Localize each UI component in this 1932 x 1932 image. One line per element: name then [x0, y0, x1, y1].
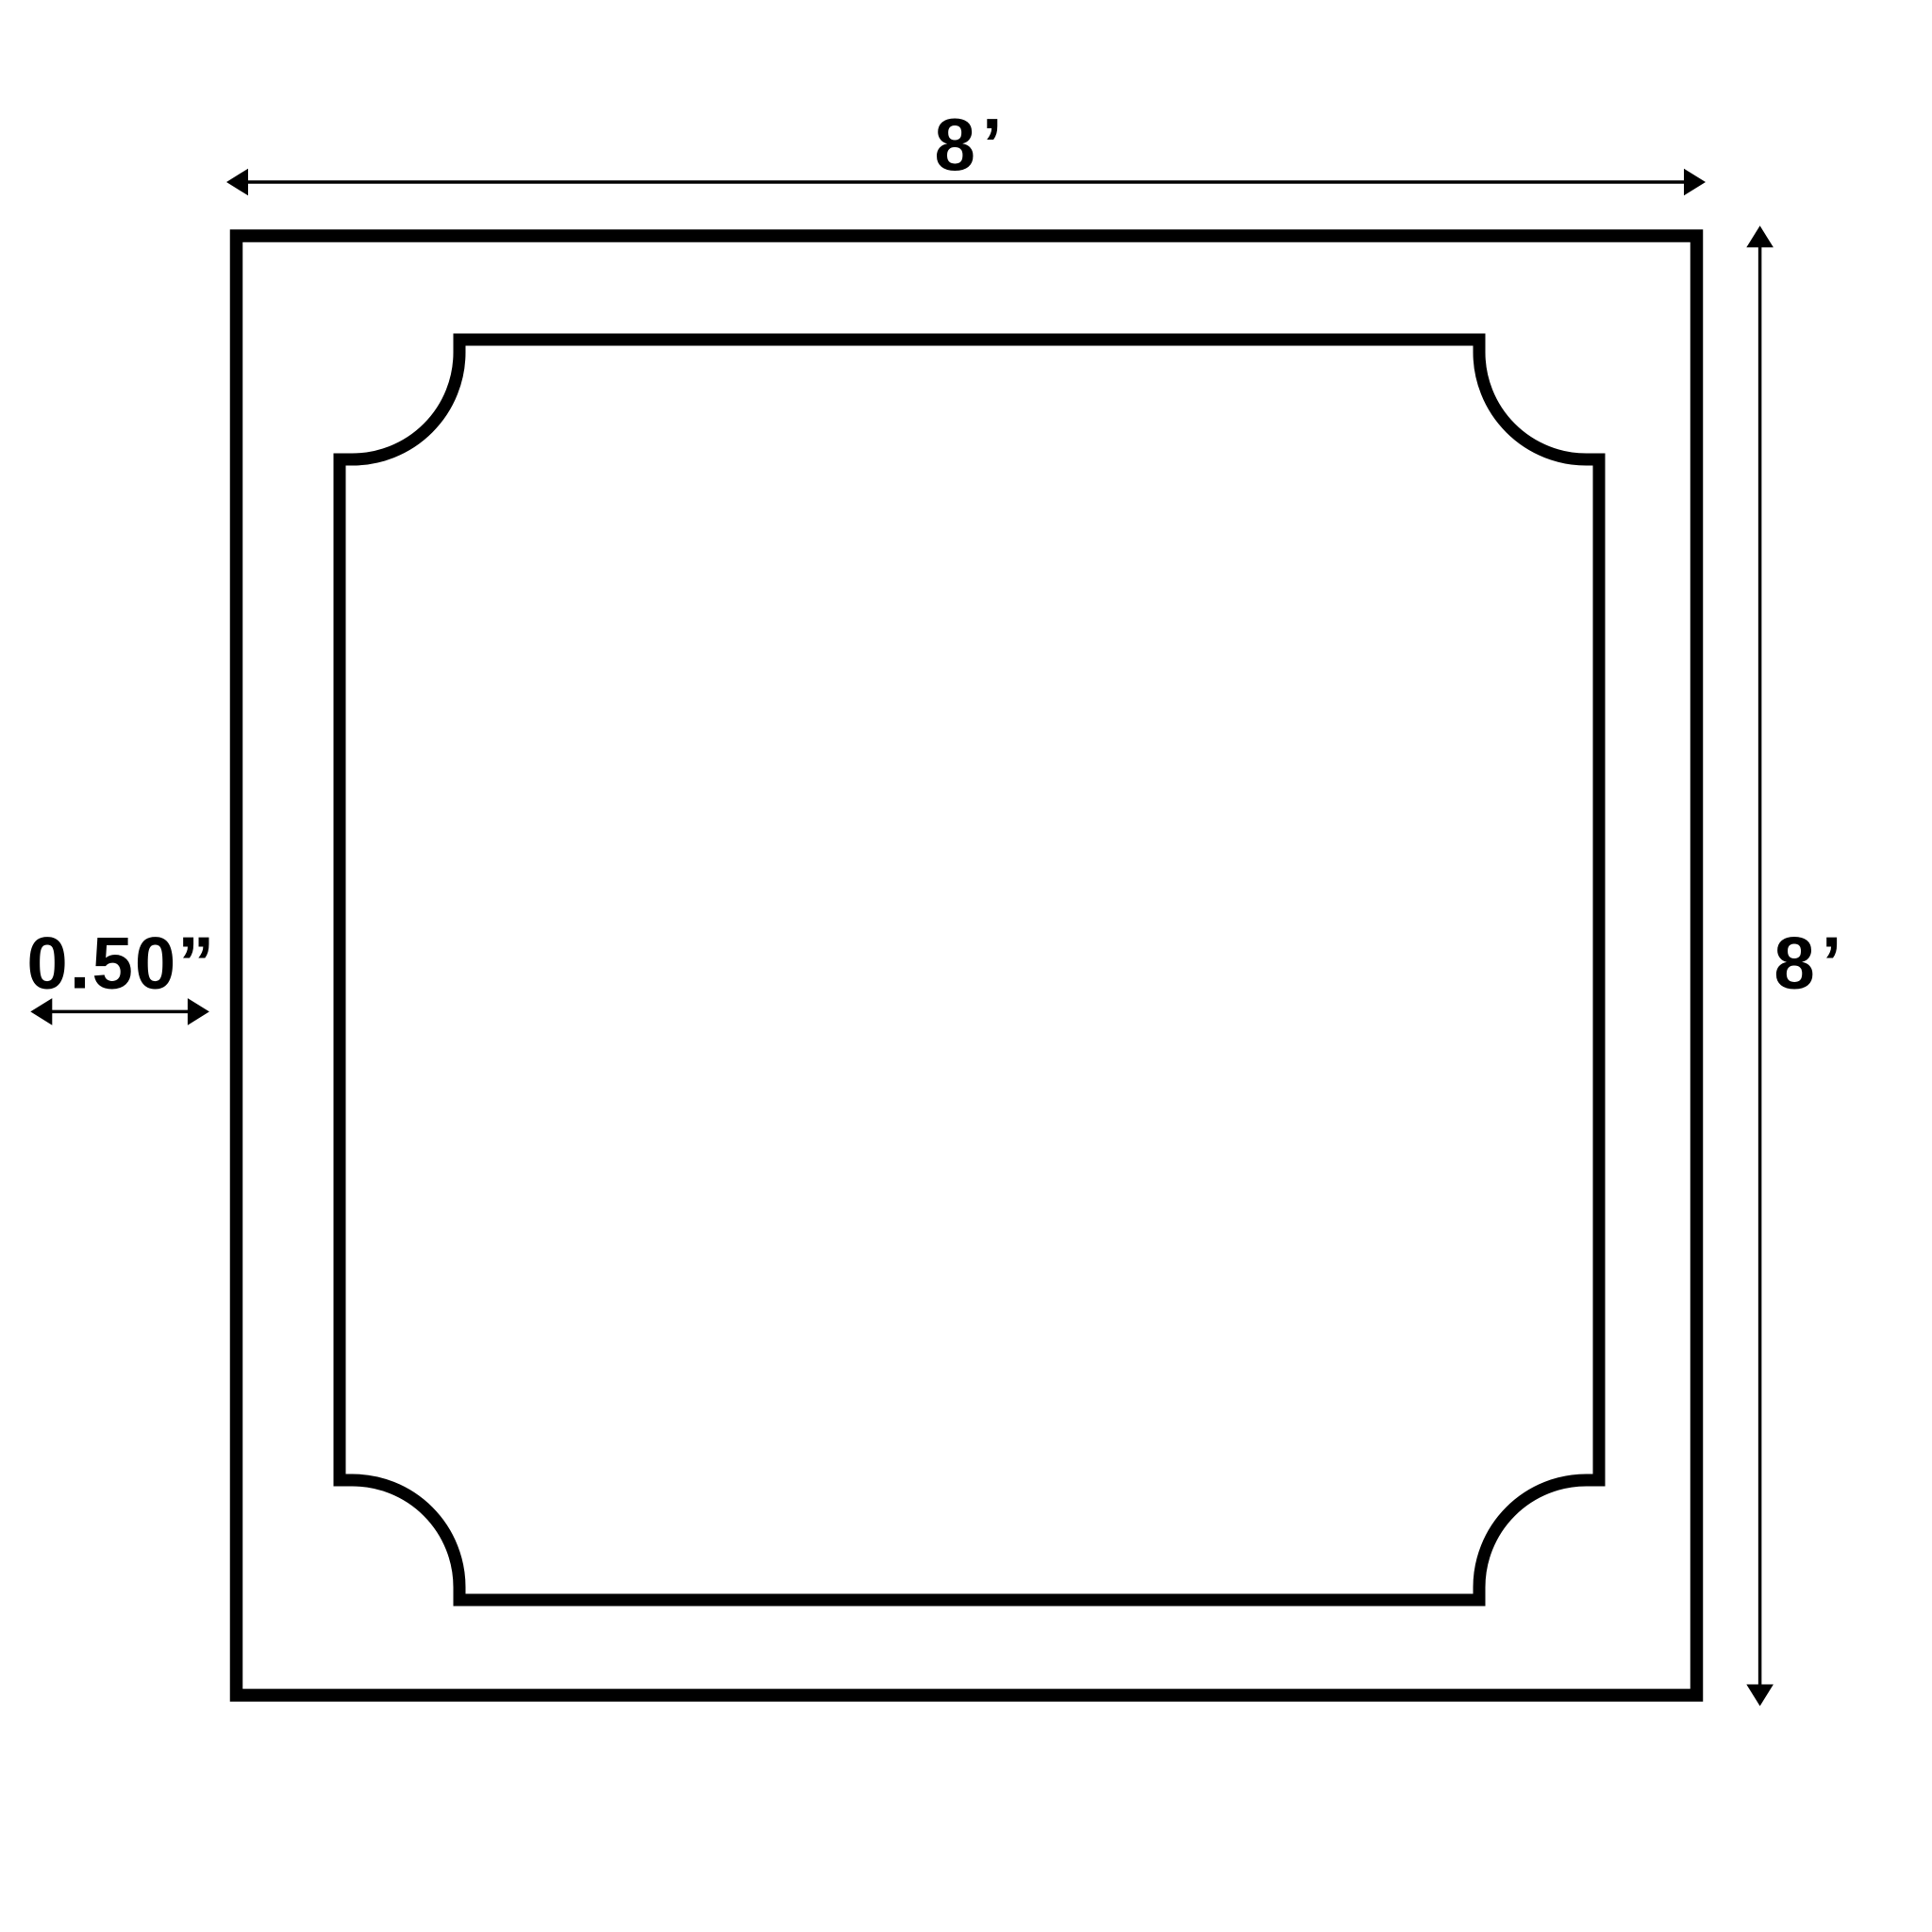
- svg-text:0.50”: 0.50”: [26, 922, 216, 1005]
- svg-text:8’: 8’: [1774, 922, 1848, 1005]
- svg-text:8’: 8’: [935, 103, 1009, 186]
